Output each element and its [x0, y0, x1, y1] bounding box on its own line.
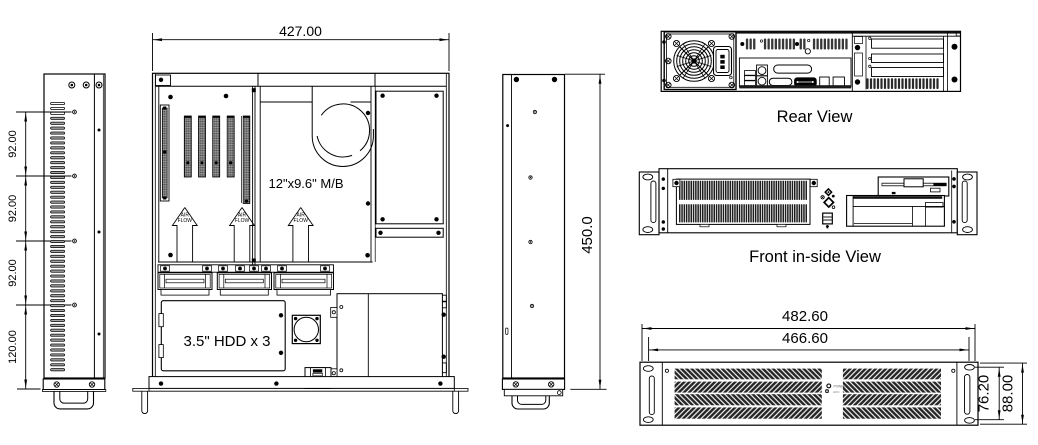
svg-text:92.00: 92.00 [7, 195, 19, 223]
svg-text:450.0: 450.0 [579, 216, 596, 254]
svg-text:76.20: 76.20 [976, 375, 993, 413]
svg-text:FLOW: FLOW [293, 218, 308, 224]
svg-text:88.00: 88.00 [1000, 375, 1017, 413]
svg-text:92.00: 92.00 [7, 130, 19, 158]
svg-text:POWER: POWER [834, 384, 847, 388]
svg-text:HDD: HDD [833, 390, 840, 394]
svg-text:Rear View: Rear View [777, 108, 853, 126]
svg-text:12"x9.6" M/B: 12"x9.6" M/B [269, 176, 344, 191]
svg-text:427.00: 427.00 [279, 23, 322, 39]
svg-text:FLOW: FLOW [235, 218, 250, 224]
svg-text:120.00: 120.00 [7, 330, 19, 364]
svg-text:3.5" HDD x 3: 3.5" HDD x 3 [183, 333, 270, 350]
svg-text:FLOW: FLOW [178, 218, 193, 224]
svg-text:482.60: 482.60 [782, 308, 828, 325]
svg-text:Front in-side View: Front in-side View [749, 248, 881, 266]
svg-text:466.60: 466.60 [782, 330, 828, 347]
svg-text:92.00: 92.00 [7, 259, 19, 287]
